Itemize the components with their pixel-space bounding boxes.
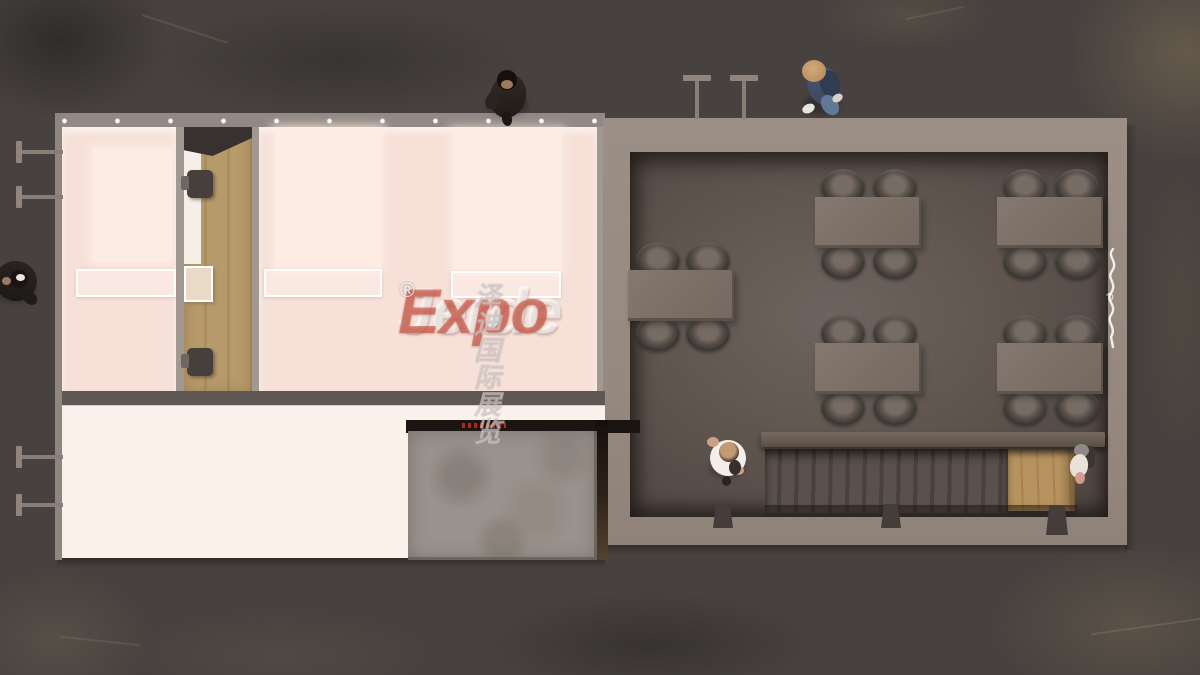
floor-stain — [480, 590, 820, 675]
truss-stem — [742, 81, 746, 119]
handrail-bar — [761, 432, 1105, 447]
truss-light — [16, 494, 63, 516]
truss-light — [16, 141, 63, 163]
room-left-counter — [76, 269, 176, 297]
floor-stain — [820, 0, 990, 50]
dining-table — [815, 197, 921, 248]
dining-chair — [1003, 243, 1047, 279]
stair-shadow — [765, 505, 1077, 517]
visitor-blue-shirt — [794, 54, 850, 122]
rooms-back-wall — [55, 391, 605, 405]
booth-left-wall — [55, 113, 62, 560]
room-right-inner-ceiling-a — [275, 129, 382, 270]
visitor-dark-suit-top — [480, 60, 536, 126]
dining-chair — [821, 389, 865, 425]
dining-table — [997, 197, 1103, 248]
floor-stain — [1140, 170, 1200, 450]
truss-stem — [22, 195, 63, 199]
floor-stain — [130, 610, 430, 675]
expo-floor-render: JerdeExpo® 泽迪国际展览 — [0, 0, 1200, 675]
room-right-inner-ceiling-b — [453, 131, 562, 273]
corridor-armchair — [187, 348, 213, 376]
dining-chair — [1055, 243, 1099, 279]
dining-chair — [873, 243, 917, 279]
dining-table — [815, 343, 921, 394]
floor-stain — [150, 0, 530, 120]
support-leg — [713, 504, 733, 528]
support-leg — [1046, 505, 1068, 535]
visitor-white-shirt — [702, 432, 754, 488]
visitor-on-landing — [1066, 442, 1096, 494]
room-left-inner-ceiling — [92, 148, 172, 262]
person-face — [501, 80, 513, 89]
person-cuff — [16, 274, 25, 281]
dining-chair — [1003, 389, 1047, 425]
person-bag — [729, 460, 741, 475]
corridor-armchair — [187, 170, 213, 198]
dining-table — [628, 270, 734, 321]
person-shoe — [722, 476, 731, 486]
person-head — [802, 60, 826, 82]
stair-wood-landing — [1008, 449, 1075, 511]
room-right-counter-a — [264, 269, 382, 297]
truss-stem — [22, 503, 63, 507]
truss-light — [16, 446, 63, 468]
floor-stain — [990, 545, 1200, 675]
floor-stain — [0, 570, 150, 675]
truss-light — [683, 75, 711, 119]
truss-light — [16, 186, 63, 208]
person-arm — [707, 437, 719, 447]
registered-trademark-icon: ® — [400, 281, 414, 301]
dining-table — [997, 343, 1103, 394]
watermark-chinese-subtitle: 泽迪国际展览 — [474, 284, 506, 446]
truss-stem — [22, 150, 63, 154]
support-leg — [881, 504, 901, 528]
dining-chair — [821, 243, 865, 279]
person-leg — [1075, 472, 1085, 484]
visitor-dark-suit-left — [0, 248, 44, 314]
truss-light — [730, 75, 758, 119]
truss-stem — [22, 455, 63, 459]
person-hand — [2, 277, 11, 285]
concrete-reception-desk — [408, 431, 597, 560]
dining-chair — [1055, 389, 1099, 425]
truss-stem — [695, 81, 699, 119]
person-head — [719, 442, 739, 462]
dining-chair — [873, 389, 917, 425]
staircase — [765, 449, 1008, 513]
signature-wall-logo — [1103, 245, 1123, 351]
floor-stain — [0, 0, 170, 120]
partition-wall — [252, 127, 259, 393]
corridor-bench — [184, 266, 213, 302]
